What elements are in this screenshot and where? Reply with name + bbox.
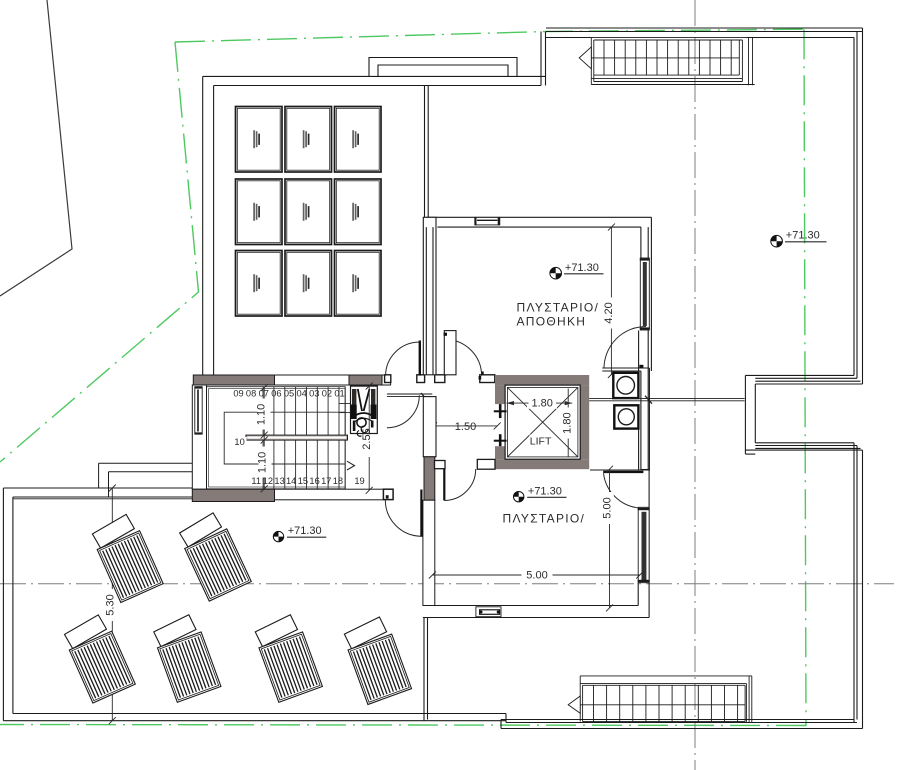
svg-text:5.30: 5.30 bbox=[104, 594, 116, 615]
svg-text:14: 14 bbox=[286, 476, 296, 486]
svg-text:ΠΛΥΣΤΑΡΙΟ/: ΠΛΥΣΤΑΡΙΟ/ bbox=[503, 512, 586, 526]
svg-text:1.80: 1.80 bbox=[561, 412, 573, 433]
svg-text:19: 19 bbox=[354, 476, 364, 486]
svg-text:+71.30: +71.30 bbox=[528, 485, 562, 497]
svg-text:1.10: 1.10 bbox=[257, 452, 269, 473]
svg-text:13: 13 bbox=[274, 476, 284, 486]
svg-text:18: 18 bbox=[333, 476, 343, 486]
svg-text:16: 16 bbox=[309, 476, 319, 486]
svg-text:10: 10 bbox=[234, 437, 244, 447]
svg-text:ΠΛΥΣΤΑΡΙΟ/: ΠΛΥΣΤΑΡΙΟ/ bbox=[517, 300, 600, 314]
svg-text:15: 15 bbox=[298, 476, 308, 486]
svg-text:08: 08 bbox=[246, 389, 256, 399]
svg-text:17: 17 bbox=[321, 476, 331, 486]
svg-text:+71.30: +71.30 bbox=[786, 230, 820, 242]
svg-text:06: 06 bbox=[271, 389, 281, 399]
svg-text:4.20: 4.20 bbox=[603, 302, 615, 323]
svg-text:09: 09 bbox=[233, 389, 243, 399]
svg-text:03: 03 bbox=[309, 389, 319, 399]
svg-text:1.50: 1.50 bbox=[455, 421, 476, 433]
svg-text:02: 02 bbox=[322, 389, 332, 399]
svg-text:ΑΠΟΘΗΚΗ: ΑΠΟΘΗΚΗ bbox=[517, 314, 587, 328]
svg-text:2.55: 2.55 bbox=[361, 428, 373, 449]
svg-text:01: 01 bbox=[334, 389, 344, 399]
svg-text:+71.30: +71.30 bbox=[565, 262, 599, 274]
svg-text:5.00: 5.00 bbox=[602, 497, 614, 518]
svg-text:LIFT: LIFT bbox=[530, 436, 552, 448]
svg-text:1.10: 1.10 bbox=[256, 404, 268, 425]
svg-text:5.00: 5.00 bbox=[526, 570, 547, 582]
svg-text:05: 05 bbox=[284, 389, 294, 399]
svg-text:1.80: 1.80 bbox=[531, 398, 552, 410]
svg-text:+71.30: +71.30 bbox=[288, 525, 322, 537]
svg-text:04: 04 bbox=[297, 389, 307, 399]
